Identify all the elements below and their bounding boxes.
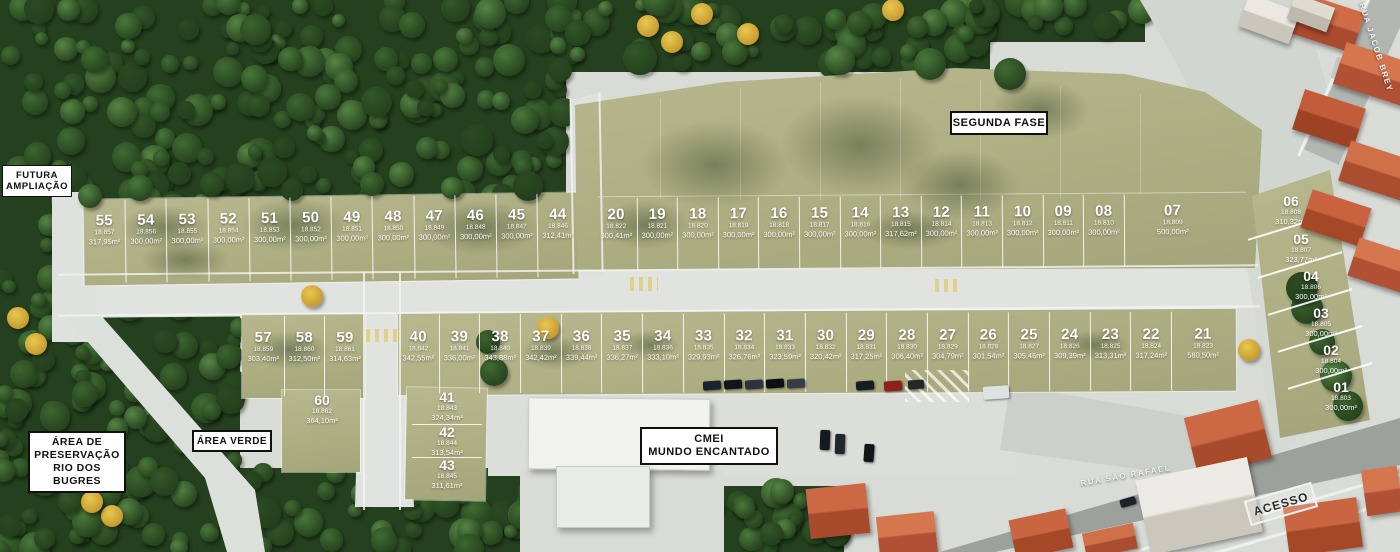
lot-area: 300,00m² — [926, 229, 958, 238]
tree — [969, 0, 983, 13]
lot-num: 16 — [770, 206, 787, 222]
label-line: FUTURA — [16, 170, 58, 181]
lot-14: 1418.816300,00m² — [839, 196, 880, 268]
lot-48: 4818.850300,00m² — [372, 196, 414, 280]
tree — [40, 401, 71, 432]
lot-area: 580,50m² — [1187, 351, 1219, 360]
tree — [389, 162, 414, 187]
lot-num: 24 — [1061, 327, 1078, 343]
lot-num: 53 — [178, 212, 196, 228]
tree — [457, 156, 483, 182]
label-line: ÁREA VERDE — [197, 436, 267, 447]
lot-reg: 18.810 — [1094, 220, 1114, 228]
lot-54: 5418.856300,00m² — [125, 199, 167, 283]
lot-area: 300,00m² — [419, 232, 451, 241]
tree — [361, 87, 391, 117]
tree — [475, 57, 495, 77]
tree — [957, 26, 974, 43]
tree — [299, 166, 316, 183]
label-line: BUGRES — [53, 475, 101, 488]
lot-num: 50 — [302, 210, 320, 226]
lot-reg: 18.833 — [775, 344, 795, 352]
lot-num: 06 — [1283, 194, 1299, 209]
tree — [54, 37, 78, 61]
lot-reg: 18.803 — [1331, 395, 1351, 403]
tree — [118, 62, 148, 92]
lot-43: 4318.845311,61m² — [412, 457, 482, 503]
tree — [461, 124, 492, 155]
lot-17: 1718.819300,00m² — [718, 197, 759, 269]
lot-num: 35 — [614, 329, 631, 345]
lot-11: 1118.813300,00m² — [961, 195, 1002, 267]
lot-52: 5218.854300,00m² — [207, 198, 249, 282]
label-line: MUNDO ENCANTADO — [648, 446, 770, 459]
lot-area: 326,76m² — [728, 352, 760, 361]
tree — [142, 523, 165, 546]
lot-num: 52 — [220, 211, 238, 227]
lot-num: 12 — [933, 205, 950, 221]
lot-reg: 18.861 — [335, 346, 355, 354]
tree — [317, 482, 335, 500]
lot-row-mid_left: 5718.859303,40m²5818.860312,50m²5918.861… — [243, 316, 365, 396]
house-roof — [1361, 466, 1400, 517]
lot-num: 34 — [654, 329, 671, 345]
lot-44: 4418.846312,41m² — [536, 194, 578, 278]
lot-45: 4518.847300,00m² — [495, 194, 537, 278]
lot-area: 300,00m² — [460, 232, 492, 241]
lot-area: 312,41m² — [542, 231, 574, 240]
house-roof — [876, 511, 938, 552]
car — [766, 378, 785, 388]
lot-reg: 18.805 — [1311, 321, 1331, 329]
lot-area: 342,42m² — [525, 353, 557, 362]
lot-reg: 18.814 — [932, 221, 952, 229]
lot-reg: 18.807 — [1291, 247, 1311, 255]
lot-num: 28 — [898, 328, 915, 344]
tree — [386, 66, 405, 85]
tree — [1093, 12, 1119, 38]
lot-reg: 18.856 — [136, 228, 156, 236]
lot-30: 3018.832320,42m² — [805, 313, 846, 392]
lot-50: 5018.852300,00m² — [289, 197, 331, 281]
lot-01: 0118.803300,00m² — [1298, 378, 1384, 412]
tree — [107, 97, 137, 127]
lot-reg: 18.804 — [1321, 358, 1341, 366]
lot-reg: 18.859 — [253, 346, 273, 354]
lot-reg: 18.852 — [301, 226, 321, 234]
lot-reg: 18.815 — [891, 221, 911, 229]
lot-num: 25 — [1020, 327, 1037, 343]
lot-area: 364,10m² — [306, 416, 338, 425]
lot-19: 1918.821300,00m² — [636, 198, 677, 270]
lot-reg: 18.813 — [972, 220, 992, 228]
crosswalk — [630, 277, 658, 291]
lot-num: 15 — [811, 206, 828, 222]
car — [863, 444, 874, 463]
car — [835, 434, 846, 454]
tree — [22, 89, 47, 114]
yellow-tree — [81, 491, 103, 513]
label-line: AMPLIAÇÃO — [6, 181, 68, 192]
lot-area: 313,54m² — [431, 448, 463, 457]
lot-num: 09 — [1054, 204, 1071, 220]
lot-num: 01 — [1333, 380, 1349, 395]
car — [820, 430, 831, 450]
lot-reg: 18.806 — [1301, 284, 1321, 292]
tree — [416, 137, 438, 159]
lot-area: 300,00m² — [130, 236, 162, 245]
lot-area: 336,27m² — [606, 353, 638, 362]
label-area-verde: ÁREA VERDE — [192, 430, 272, 452]
lot-num: 59 — [336, 330, 353, 346]
tree — [240, 14, 271, 45]
lot-reg: 18.836 — [653, 345, 673, 353]
cmei-building-wing — [556, 466, 650, 528]
car — [724, 379, 743, 389]
label-futura-ampliacao: FUTURA AMPLIAÇÃO — [2, 165, 72, 197]
lot-reg: 18.826 — [1060, 343, 1080, 351]
lot-reg: 18.854 — [219, 227, 239, 235]
lot-46: 4618.848300,00m² — [454, 195, 496, 279]
lot-num: 55 — [96, 213, 114, 229]
lot-reg: 18.855 — [177, 228, 197, 236]
phase2-lot-line — [1140, 94, 1141, 194]
lot-num: 19 — [649, 207, 666, 223]
car — [908, 379, 925, 389]
lot-num: 22 — [1142, 327, 1159, 343]
lot-area: 313,31m² — [1095, 351, 1127, 360]
lot-35: 3518.837336,27m² — [601, 314, 642, 393]
tree — [273, 137, 295, 159]
lot-24: 2418.826309,39m² — [1049, 312, 1090, 391]
lot-area: 320,42m² — [810, 352, 842, 361]
lot-41: 4118.843324,34m² — [412, 390, 482, 424]
lot-num: 03 — [1313, 306, 1329, 321]
lot-reg: 18.853 — [260, 227, 280, 235]
lot-area: 300,00m² — [501, 231, 533, 240]
lot-area: 339,44m² — [566, 353, 598, 362]
lot-area: 306,40m² — [891, 352, 923, 361]
yellow-tree — [7, 307, 29, 329]
lot-reg: 18.851 — [342, 226, 362, 234]
house-roof — [806, 483, 871, 539]
lot-26: 2618.828301,54m² — [967, 312, 1008, 391]
tree — [248, 144, 263, 159]
lot-10: 1018.812300,00m² — [1002, 195, 1043, 267]
lot-row-top_right: 2018.822300,41m²1918.821300,00m²1818.820… — [596, 194, 1221, 270]
lot-row-top_left: 5518.857317,95m²5418.856300,00m²5318.855… — [83, 194, 578, 284]
lot-area: 300,00m² — [682, 230, 714, 239]
yellow-tree — [737, 23, 759, 45]
lot-num: 49 — [343, 210, 361, 226]
lot-num: 51 — [261, 211, 279, 227]
lot-reg: 18.850 — [383, 225, 403, 233]
label-line: RIO DOS — [53, 462, 101, 475]
lot-num: 05 — [1293, 232, 1309, 247]
car — [884, 380, 903, 391]
lot-reg: 18.820 — [688, 222, 708, 230]
label-line: PRESERVAÇÃO — [34, 449, 120, 462]
lot-58: 5818.860312,50m² — [284, 316, 325, 396]
lot-13: 1318.815317,62m² — [880, 196, 921, 268]
lot-area: 300,00m² — [254, 235, 286, 244]
lot-reg: 18.823 — [1193, 343, 1213, 351]
lot-12: 1218.814300,00m² — [920, 196, 961, 268]
lot-area: 303,40m² — [247, 354, 279, 363]
lot-area: 300,00m² — [172, 236, 204, 245]
tree — [770, 479, 794, 503]
lot-reg: 18.829 — [938, 344, 958, 352]
car — [856, 380, 875, 390]
tree — [673, 54, 691, 72]
tree — [760, 522, 782, 544]
lot-area: 304,79m² — [932, 351, 964, 360]
lot-07: 0718.809500,00m² — [1123, 194, 1221, 267]
lot-reg: 18.812 — [1013, 220, 1033, 228]
lot-18: 1818.820300,00m² — [677, 197, 718, 269]
lot-area: 300,41m² — [600, 231, 632, 240]
lot-area: 323,59m² — [769, 352, 801, 361]
lot-reg: 18.830 — [897, 344, 917, 352]
lot-area: 333,10m² — [647, 352, 679, 361]
lot-area: 311,61m² — [431, 481, 462, 490]
tree — [160, 363, 186, 389]
lot-area: 317,62m² — [885, 229, 917, 238]
tree — [22, 509, 37, 524]
yellow-tree — [637, 15, 659, 37]
lot-num: 48 — [384, 209, 402, 225]
lot-reg: 18.845 — [437, 473, 457, 481]
lot-num: 32 — [736, 328, 753, 344]
lot-area: 300,00m² — [336, 233, 368, 242]
tree — [224, 163, 255, 194]
tree — [1054, 17, 1073, 36]
lot-area: 300,00m² — [804, 230, 836, 239]
lot-num: 38 — [491, 329, 508, 345]
lot-reg: 18.817 — [810, 222, 830, 230]
yellow-tree — [882, 0, 904, 21]
lot-area: 300,00m² — [642, 231, 674, 240]
lot-53: 5318.855300,00m² — [166, 199, 208, 283]
tree — [211, 94, 226, 109]
label-segunda-fase: SEGUNDA FASE — [950, 111, 1048, 135]
lot-reg: 18.857 — [94, 229, 114, 237]
tree — [213, 57, 243, 87]
lot-20: 2018.822300,41m² — [596, 198, 637, 270]
lot-num: 11 — [974, 204, 991, 220]
lot-reg: 18.816 — [850, 221, 870, 229]
lot-num: 37 — [532, 329, 549, 345]
lot-num: 13 — [892, 205, 909, 221]
lot-area: 324,34m² — [431, 413, 463, 422]
lot-42: 4218.844313,54m² — [412, 424, 482, 457]
lot-39: 3918.841336,00m² — [439, 314, 480, 393]
lot-num: 17 — [730, 206, 747, 222]
lot-reg: 18.825 — [1101, 343, 1121, 351]
tree — [793, 16, 822, 45]
lot-reg: 18.848 — [466, 224, 486, 232]
lot-num: 18 — [689, 206, 706, 222]
tree — [417, 99, 434, 116]
tree — [24, 73, 43, 92]
lot-40: 4018.842342,55m² — [398, 314, 439, 393]
lot-57: 5718.859303,40m² — [243, 316, 284, 396]
lot-area: 300,00m² — [213, 235, 245, 244]
lot-num: 30 — [817, 328, 834, 344]
lot-47: 4718.849300,00m² — [413, 195, 455, 279]
lot-num: 54 — [137, 212, 155, 228]
tree — [492, 92, 510, 110]
lot-16: 1618.818300,00m² — [758, 197, 799, 269]
lot-reg: 18.831 — [856, 344, 876, 352]
tree — [405, 521, 422, 538]
lot-num: 10 — [1014, 204, 1031, 220]
lot-area: 300,00m² — [377, 233, 409, 242]
lot-num: 36 — [573, 329, 590, 345]
lot-34: 3418.836333,10m² — [642, 313, 683, 392]
label-line: ÁREA DE — [52, 436, 102, 449]
lot-reg: 18.840 — [490, 345, 510, 353]
yellow-tree — [301, 285, 323, 307]
lot-reg: 18.843 — [437, 405, 457, 413]
lot-reg: 18.842 — [408, 345, 428, 353]
lot-num: 29 — [858, 328, 875, 344]
lot-reg: 18.849 — [424, 224, 444, 232]
car — [703, 380, 722, 390]
lot-num: 47 — [426, 208, 444, 224]
tree — [115, 13, 141, 39]
lot-num: 57 — [255, 330, 272, 346]
lot-area: 342,55m² — [403, 353, 435, 362]
tree — [257, 157, 287, 187]
lot-num: 23 — [1102, 327, 1119, 343]
lot-area: 300,00m² — [844, 229, 876, 238]
lot-60: 6018.862364,10m² — [286, 393, 358, 425]
house-roof — [1338, 141, 1400, 202]
lot-area: 314,63m² — [329, 354, 361, 363]
tree — [60, 99, 85, 124]
lot-09: 0918.811300,00m² — [1042, 195, 1083, 267]
lot-area: 309,39m² — [1054, 351, 1086, 360]
lot-num: 31 — [776, 328, 793, 344]
lot-num: 26 — [980, 327, 997, 343]
lot-reg: 18.824 — [1141, 343, 1161, 351]
label-line: SEGUNDA FASE — [953, 117, 1045, 129]
lot-num: 33 — [695, 328, 712, 344]
lot-num: 39 — [451, 329, 468, 345]
label-cmei: CMEI MUNDO ENCANTADO — [640, 427, 778, 465]
lot-reg: 18.818 — [769, 222, 789, 230]
tree — [565, 20, 591, 46]
crosswalk — [366, 329, 398, 342]
lot-reg: 18.808 — [1281, 209, 1301, 217]
tree — [161, 55, 179, 73]
tree — [493, 44, 525, 76]
lot-reg: 18.832 — [816, 344, 836, 352]
lot-38: 3818.840343,88m² — [479, 314, 520, 393]
tree — [523, 80, 542, 99]
lot-22: 2218.824317,24m² — [1130, 312, 1171, 391]
lot-num: 43 — [439, 458, 455, 473]
tree — [623, 41, 656, 74]
lot-23: 2318.825313,31m² — [1090, 312, 1131, 391]
lot-area: 312,50m² — [289, 354, 321, 363]
tree — [511, 106, 539, 134]
tree — [241, 65, 268, 92]
lot-area: 500,00m² — [1157, 227, 1189, 236]
lot-area: 300,00m² — [295, 234, 327, 243]
label-area-preservacao: ÁREA DE PRESERVAÇÃO RIO DOS BUGRES — [28, 431, 126, 493]
lot-area: 317,24m² — [1135, 351, 1167, 360]
lot-reg: 18.811 — [1054, 220, 1073, 228]
lot-21: 2118.823580,50m² — [1171, 312, 1234, 391]
lot-reg: 18.841 — [450, 345, 470, 353]
tree — [371, 527, 397, 552]
tree — [72, 381, 98, 407]
tree — [81, 46, 108, 73]
lot-area: 300,00m² — [1088, 228, 1120, 237]
crosswalk — [935, 279, 961, 292]
tree — [598, 1, 613, 16]
yellow-tree — [1238, 339, 1260, 361]
lot-reg: 18.827 — [1019, 343, 1039, 351]
lot-area: 300,00m² — [1007, 228, 1039, 237]
tree — [34, 528, 55, 549]
tree — [907, 16, 929, 38]
lot-51: 5118.853300,00m² — [248, 198, 290, 282]
tree — [153, 330, 176, 353]
lot-area: 317,25m² — [851, 352, 883, 361]
lot-reg: 18.839 — [531, 345, 551, 353]
lot-reg: 18.828 — [978, 343, 998, 351]
car — [787, 378, 806, 388]
lot-area: 336,00m² — [444, 353, 476, 362]
tree — [247, 94, 270, 117]
lot-num: 07 — [1164, 203, 1181, 219]
tree — [479, 521, 503, 545]
lot-55: 5518.857317,95m² — [83, 200, 125, 284]
tree — [825, 45, 854, 74]
yellow-tree — [661, 31, 683, 53]
lot-num: 44 — [549, 207, 567, 223]
lot-area: 300,00m² — [966, 228, 998, 237]
lot-area: 305,46m² — [1013, 351, 1045, 360]
house-roof — [1347, 237, 1400, 294]
yellow-tree — [101, 505, 123, 527]
lot-reg: 18.846 — [548, 223, 568, 231]
lot-area: 343,88m² — [484, 353, 516, 362]
yellow-tree — [25, 333, 47, 355]
tree — [320, 528, 344, 552]
tree — [292, 0, 307, 14]
lot-num: 04 — [1303, 269, 1319, 284]
tree — [153, 150, 169, 166]
lot-num: 20 — [607, 207, 624, 223]
lot-area: 300,00m² — [1047, 228, 1079, 237]
lot-02: 0218.804300,00m² — [1288, 341, 1374, 375]
lot-num: 58 — [296, 330, 313, 346]
lot-reg: 18.819 — [729, 222, 749, 230]
lot-area: 300,00m² — [723, 230, 755, 239]
lot-num: 21 — [1194, 327, 1211, 343]
lot-reg: 18.847 — [507, 223, 527, 231]
car — [745, 379, 764, 389]
lot-08: 0818.810300,00m² — [1083, 194, 1124, 266]
lot-27: 2718.829304,79m² — [927, 312, 968, 391]
lot-49: 4918.851300,00m² — [331, 196, 373, 280]
lot-reg: 18.809 — [1163, 219, 1183, 227]
lot-04: 0418.806300,00m² — [1268, 267, 1354, 301]
